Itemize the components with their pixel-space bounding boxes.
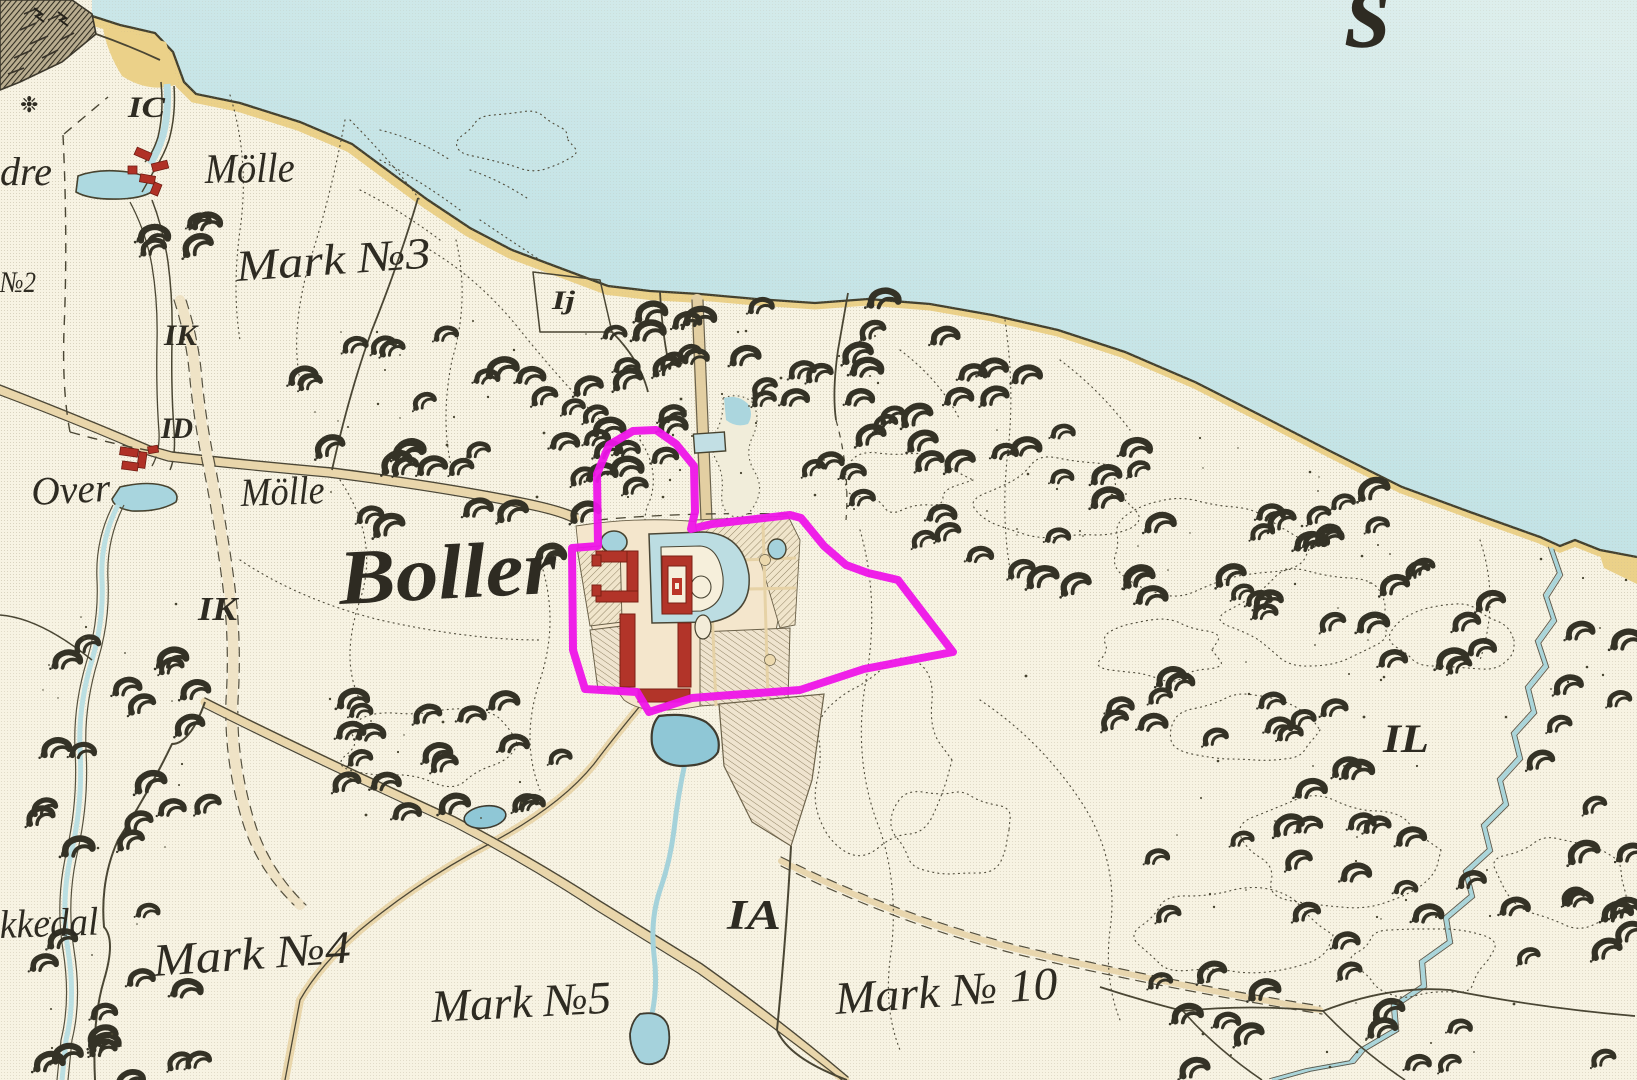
svg-text:IC: IC [127,91,166,124]
svg-text:Mölle: Mölle [203,145,295,193]
svg-text:Over: Over [30,465,112,514]
svg-text:Boller: Boller [335,523,559,621]
svg-text:IK: IK [197,591,240,628]
svg-text:Mark №5: Mark №5 [429,972,612,1032]
svg-text:❉: ❉ [20,92,38,117]
svg-text:S: S [1345,0,1390,64]
svg-text:IL: IL [1382,716,1429,761]
svg-text:IK: IK [163,319,199,352]
svg-text:№2: №2 [0,266,36,299]
svg-text:Mölle: Mölle [239,467,325,515]
svg-text:ID: ID [160,412,193,445]
svg-text:kkedal: kkedal [0,899,99,947]
svg-text:Ij: Ij [551,286,576,315]
svg-text:dre: dre [0,149,52,194]
svg-text:IA: IA [726,893,781,939]
